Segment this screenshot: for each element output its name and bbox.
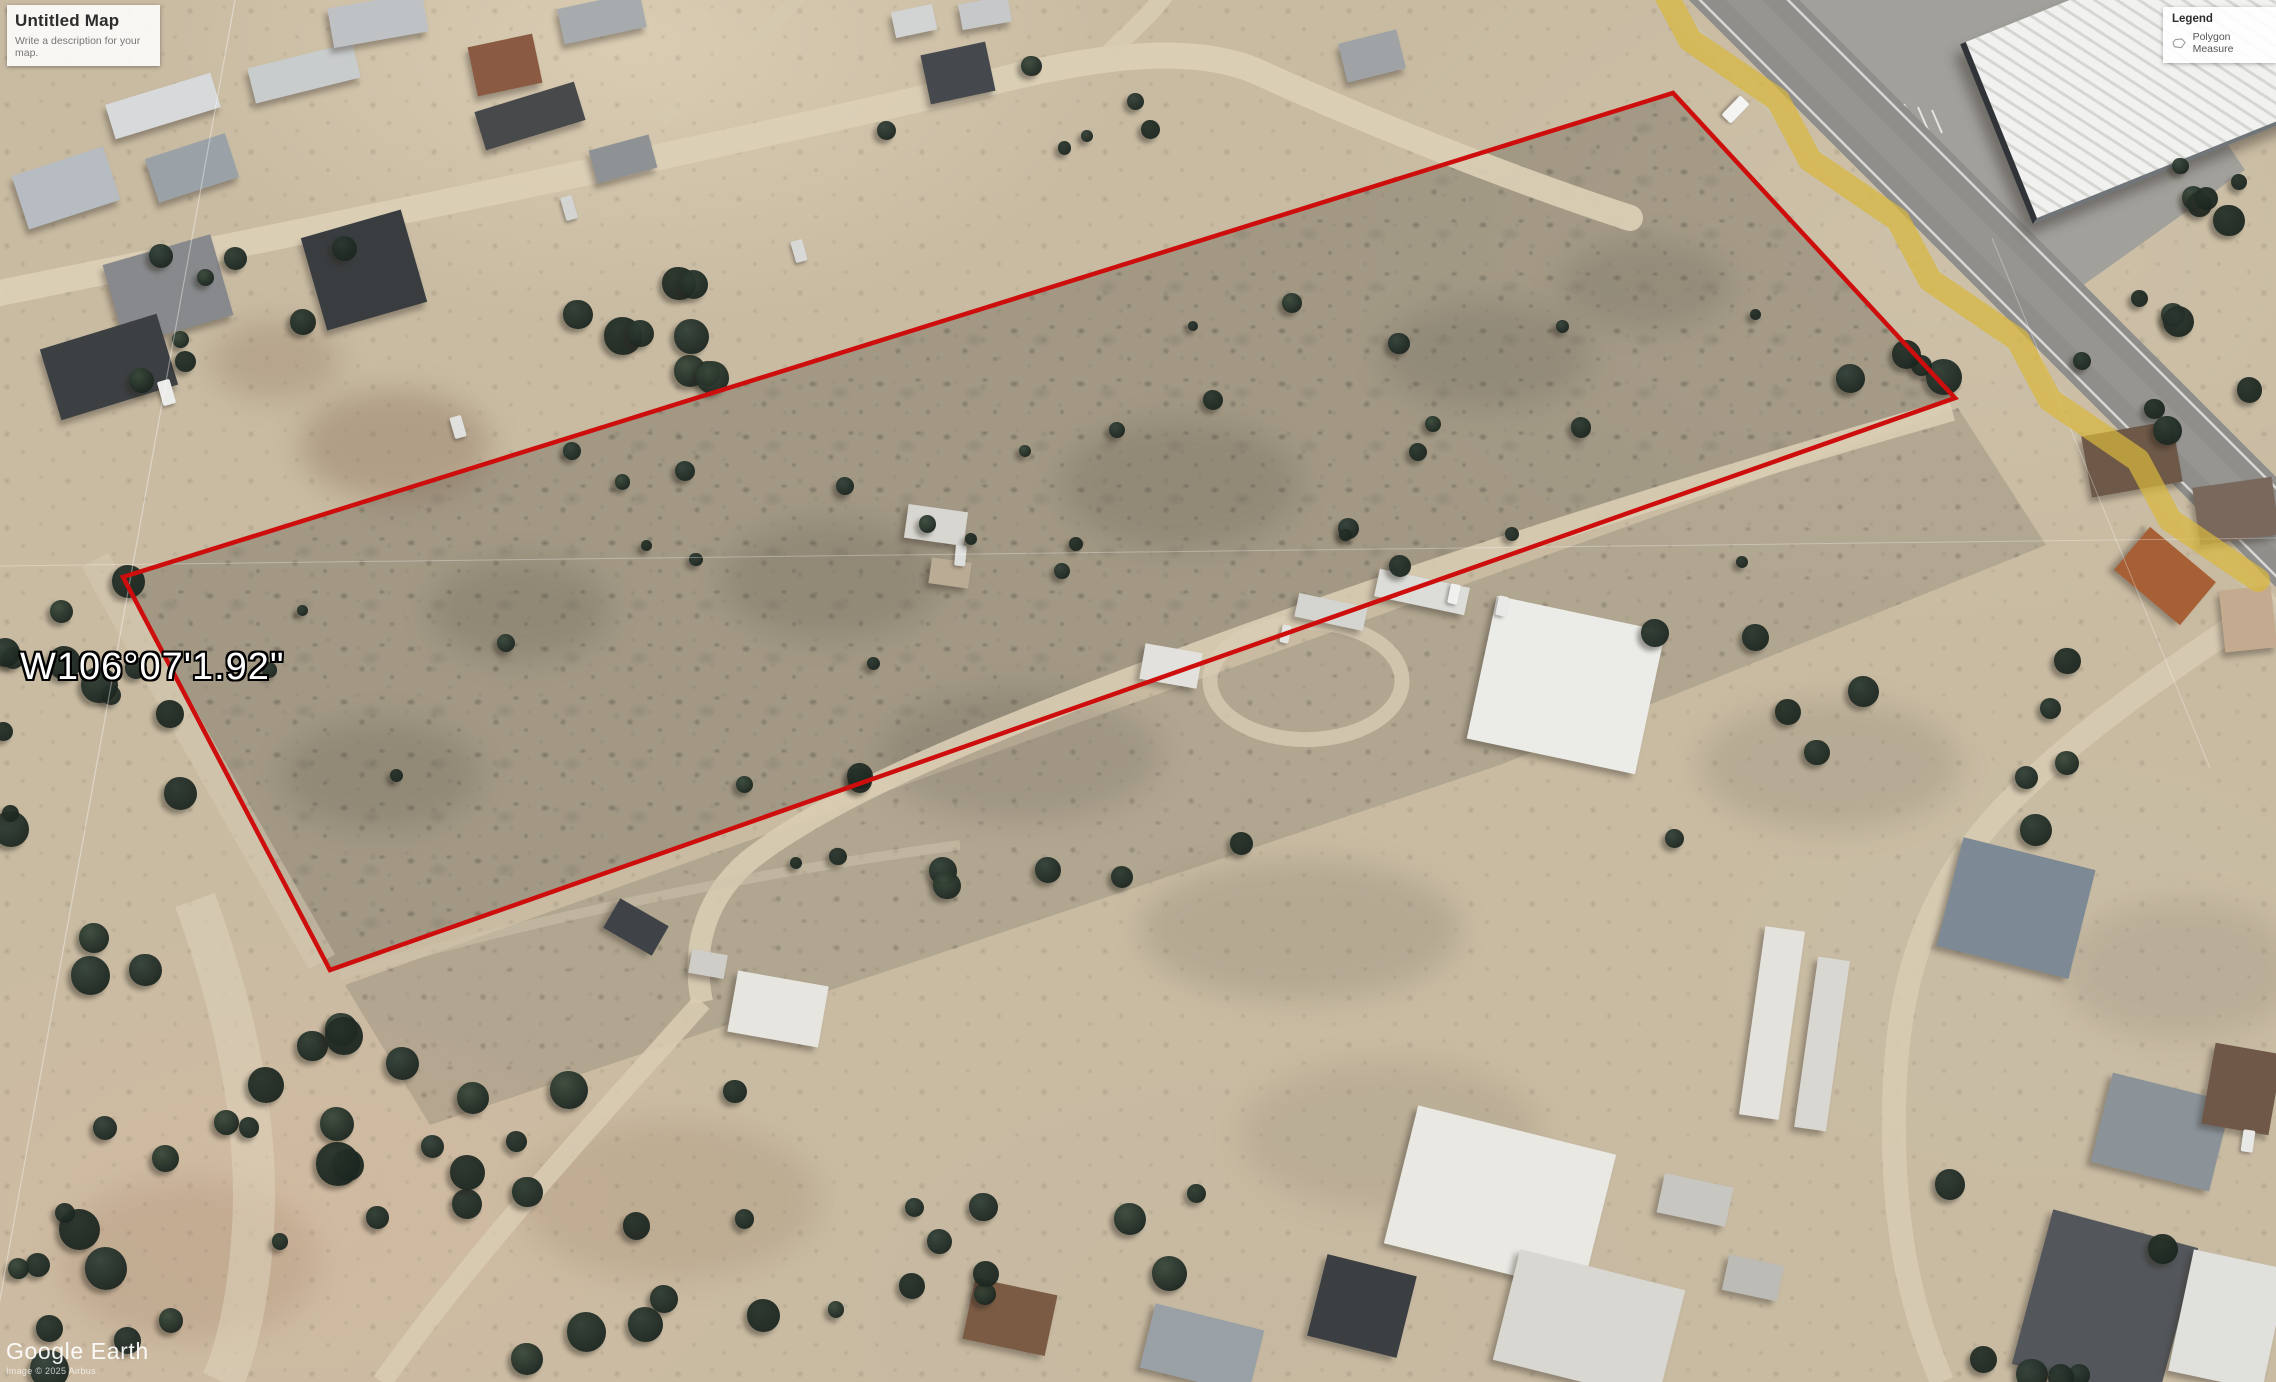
tree (1141, 120, 1160, 139)
tree (2054, 648, 2081, 675)
tree (1736, 556, 1748, 568)
tree (969, 1193, 998, 1222)
tree (1152, 1256, 1187, 1291)
google-earth-logo: Google Earth (6, 1338, 149, 1365)
tree (2163, 306, 2195, 338)
tree (836, 477, 854, 495)
tree (112, 565, 145, 598)
tree (1081, 130, 1094, 143)
tree (2016, 1359, 2048, 1382)
tree (2015, 766, 2038, 789)
tree (919, 515, 937, 533)
tree (2172, 158, 2188, 174)
tree (623, 1212, 651, 1240)
tree (506, 1131, 528, 1153)
tree (1425, 416, 1441, 432)
tree (512, 1177, 542, 1207)
tree (1282, 293, 1302, 313)
tree (905, 1198, 924, 1217)
tree (1750, 309, 1762, 321)
legend-item-polygon-measure[interactable]: Polygon Measure (2172, 31, 2272, 55)
tree (867, 657, 880, 670)
tree (1114, 1203, 1146, 1235)
tree (164, 777, 198, 811)
tree (847, 763, 874, 790)
tree (457, 1082, 489, 1114)
tree (567, 1312, 607, 1352)
tree (1188, 321, 1198, 331)
tree (450, 1155, 485, 1190)
tree (85, 1247, 127, 1289)
tree (497, 634, 515, 652)
tree (159, 1308, 183, 1332)
tree (272, 1233, 288, 1249)
tree (933, 872, 961, 900)
tree (2055, 751, 2079, 775)
tree (2131, 290, 2148, 307)
tree (156, 700, 184, 728)
tree (1641, 619, 1669, 647)
tree (290, 309, 317, 336)
tree (1389, 555, 1411, 577)
tree (563, 300, 593, 330)
imagery-copyright: Image © 2025 Airbus (6, 1366, 96, 1376)
tree (674, 319, 709, 354)
tree (877, 121, 896, 140)
tree (511, 1343, 543, 1375)
tree (628, 1307, 664, 1343)
tree (8, 1258, 29, 1279)
tree (829, 848, 847, 866)
tree (1109, 422, 1125, 438)
tree (927, 1229, 952, 1254)
tree (129, 368, 154, 393)
tree (1505, 527, 1519, 541)
map-title[interactable]: Untitled Map (15, 11, 152, 31)
tree (1571, 417, 1591, 437)
tree (899, 1273, 925, 1299)
tree (828, 1301, 844, 1317)
tree (1339, 529, 1352, 542)
tree (79, 923, 109, 953)
legend-panel: Legend Polygon Measure (2163, 7, 2276, 63)
tree (224, 247, 247, 270)
tree (71, 956, 110, 995)
google-earth-canvas[interactable]: W106°07'1.92" Untitled Map Write a descr… (0, 0, 2276, 1382)
legend-item-label: Polygon Measure (2193, 31, 2272, 55)
tree (1069, 537, 1084, 552)
tree (1775, 699, 1801, 725)
tree (2153, 416, 2183, 446)
tree (332, 236, 357, 261)
trees-layer (0, 0, 2276, 1382)
tree (175, 351, 196, 372)
tree (1021, 56, 1042, 77)
tree (2040, 698, 2061, 719)
tree (1804, 740, 1830, 766)
tree (1388, 333, 1410, 355)
tree (1970, 1346, 1997, 1373)
legend-title: Legend (2172, 13, 2272, 25)
tree (1019, 445, 1031, 457)
tree (1836, 364, 1865, 393)
tree (735, 1209, 755, 1229)
tree (366, 1206, 388, 1228)
tree (1556, 320, 1569, 333)
tree (93, 1116, 117, 1140)
tree (1111, 866, 1133, 888)
tree (129, 954, 161, 986)
tree (50, 600, 73, 623)
tree (696, 361, 729, 394)
tree (723, 1080, 747, 1104)
tree (675, 461, 695, 481)
tree (679, 270, 708, 299)
tree (172, 331, 189, 348)
tree (1127, 93, 1144, 110)
tree (2237, 377, 2263, 403)
tree (1848, 676, 1878, 706)
tree (1035, 857, 1061, 883)
map-description-placeholder[interactable]: Write a description for your map. (15, 35, 152, 59)
tree (421, 1135, 445, 1159)
tree (390, 769, 403, 782)
tree (297, 1031, 328, 1062)
tree (2231, 174, 2247, 190)
tree (790, 857, 802, 869)
tree (0, 722, 13, 741)
tree (325, 1017, 363, 1055)
tree (386, 1047, 420, 1081)
tree (1187, 1184, 1206, 1203)
tree (316, 1142, 360, 1186)
tree (1054, 563, 1070, 579)
tree (2148, 1234, 2179, 1265)
tree (736, 776, 754, 794)
tree (2073, 352, 2092, 371)
tree (689, 553, 702, 566)
tree (747, 1299, 780, 1332)
tree (2195, 187, 2218, 210)
tree (452, 1189, 482, 1219)
tree (965, 533, 977, 545)
tree (26, 1253, 50, 1277)
tree (1203, 390, 1223, 410)
tree (2213, 205, 2244, 236)
tree (627, 320, 654, 347)
tree (641, 540, 652, 551)
tree (973, 1261, 999, 1287)
tree (1230, 832, 1253, 855)
tree (1058, 141, 1072, 155)
tree (550, 1071, 588, 1109)
tree (615, 474, 631, 490)
tree (149, 244, 173, 268)
longitude-label: W106°07'1.92" (20, 646, 284, 689)
tree (197, 269, 214, 286)
tree (152, 1145, 179, 1172)
tree (1665, 829, 1684, 848)
tree (239, 1117, 260, 1138)
tree (1409, 443, 1427, 461)
tree (1742, 624, 1769, 651)
tree (248, 1067, 284, 1103)
tree (320, 1107, 354, 1141)
map-title-panel[interactable]: Untitled Map Write a description for you… (7, 5, 160, 66)
tree (2020, 814, 2052, 846)
tree (563, 442, 582, 461)
tree (297, 605, 308, 616)
tree (1935, 1169, 1966, 1200)
tree (214, 1110, 239, 1135)
polygon-icon (2172, 38, 2187, 49)
